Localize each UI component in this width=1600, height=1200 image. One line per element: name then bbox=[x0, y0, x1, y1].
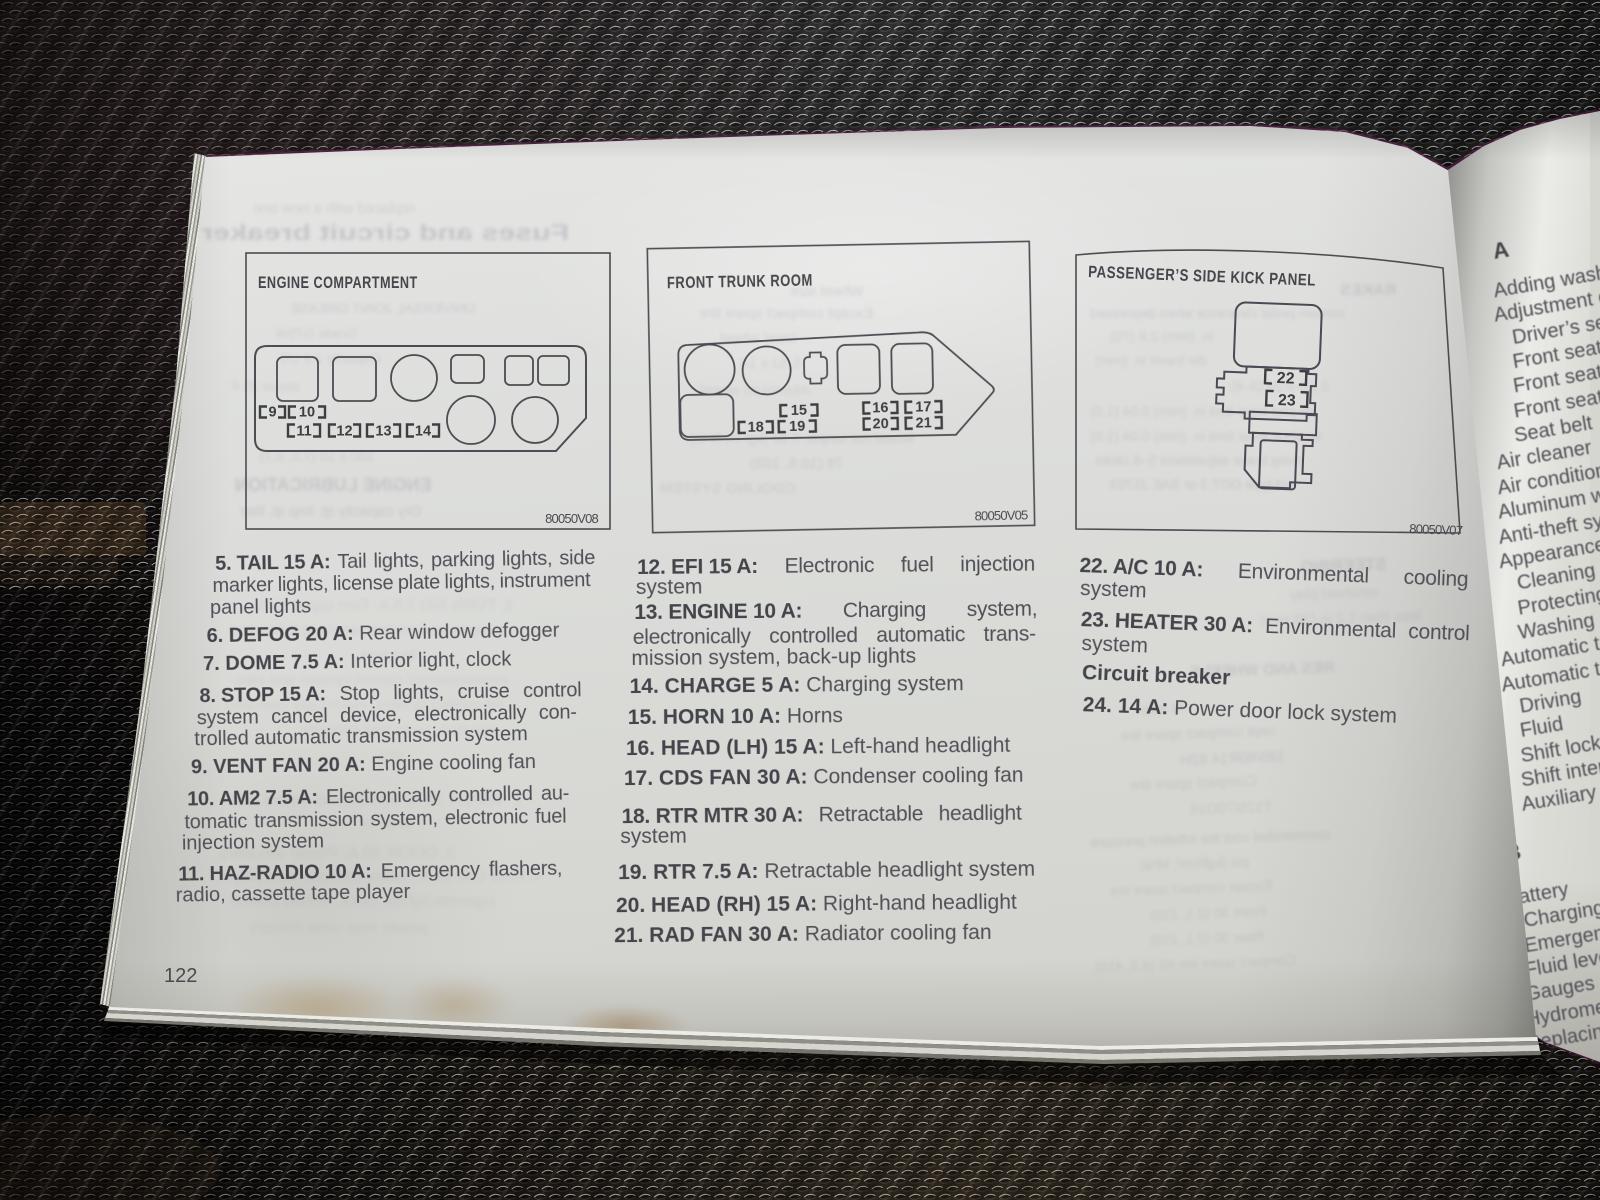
svg-text:11: 11 bbox=[296, 424, 311, 440]
svg-text:80050V05: 80050V05 bbox=[974, 507, 1028, 523]
svg-text:80050V07: 80050V07 bbox=[1409, 521, 1463, 538]
svg-text:15: 15 bbox=[791, 403, 807, 419]
svg-text:17: 17 bbox=[915, 399, 931, 415]
svg-text:20: 20 bbox=[872, 416, 888, 432]
svg-text:22: 22 bbox=[1276, 370, 1295, 388]
svg-text:21: 21 bbox=[915, 415, 931, 431]
svg-text:14: 14 bbox=[415, 424, 431, 440]
svg-text:9: 9 bbox=[268, 405, 276, 421]
svg-text:16: 16 bbox=[872, 400, 888, 416]
svg-text:12: 12 bbox=[336, 424, 352, 440]
svg-text:PASSENGER’S SIDE KICK PANEL: PASSENGER’S SIDE KICK PANEL bbox=[1088, 263, 1316, 290]
svg-text:23: 23 bbox=[1278, 392, 1297, 410]
svg-text:10: 10 bbox=[299, 405, 315, 421]
svg-text:80050V08: 80050V08 bbox=[545, 511, 598, 526]
svg-text:18: 18 bbox=[748, 420, 764, 436]
svg-text:ENGINE COMPARTMENT: ENGINE COMPARTMENT bbox=[258, 275, 418, 293]
svg-text:19: 19 bbox=[789, 419, 805, 435]
svg-text:13: 13 bbox=[375, 424, 391, 440]
svg-text:FRONT TRUNK ROOM: FRONT TRUNK ROOM bbox=[667, 272, 813, 293]
